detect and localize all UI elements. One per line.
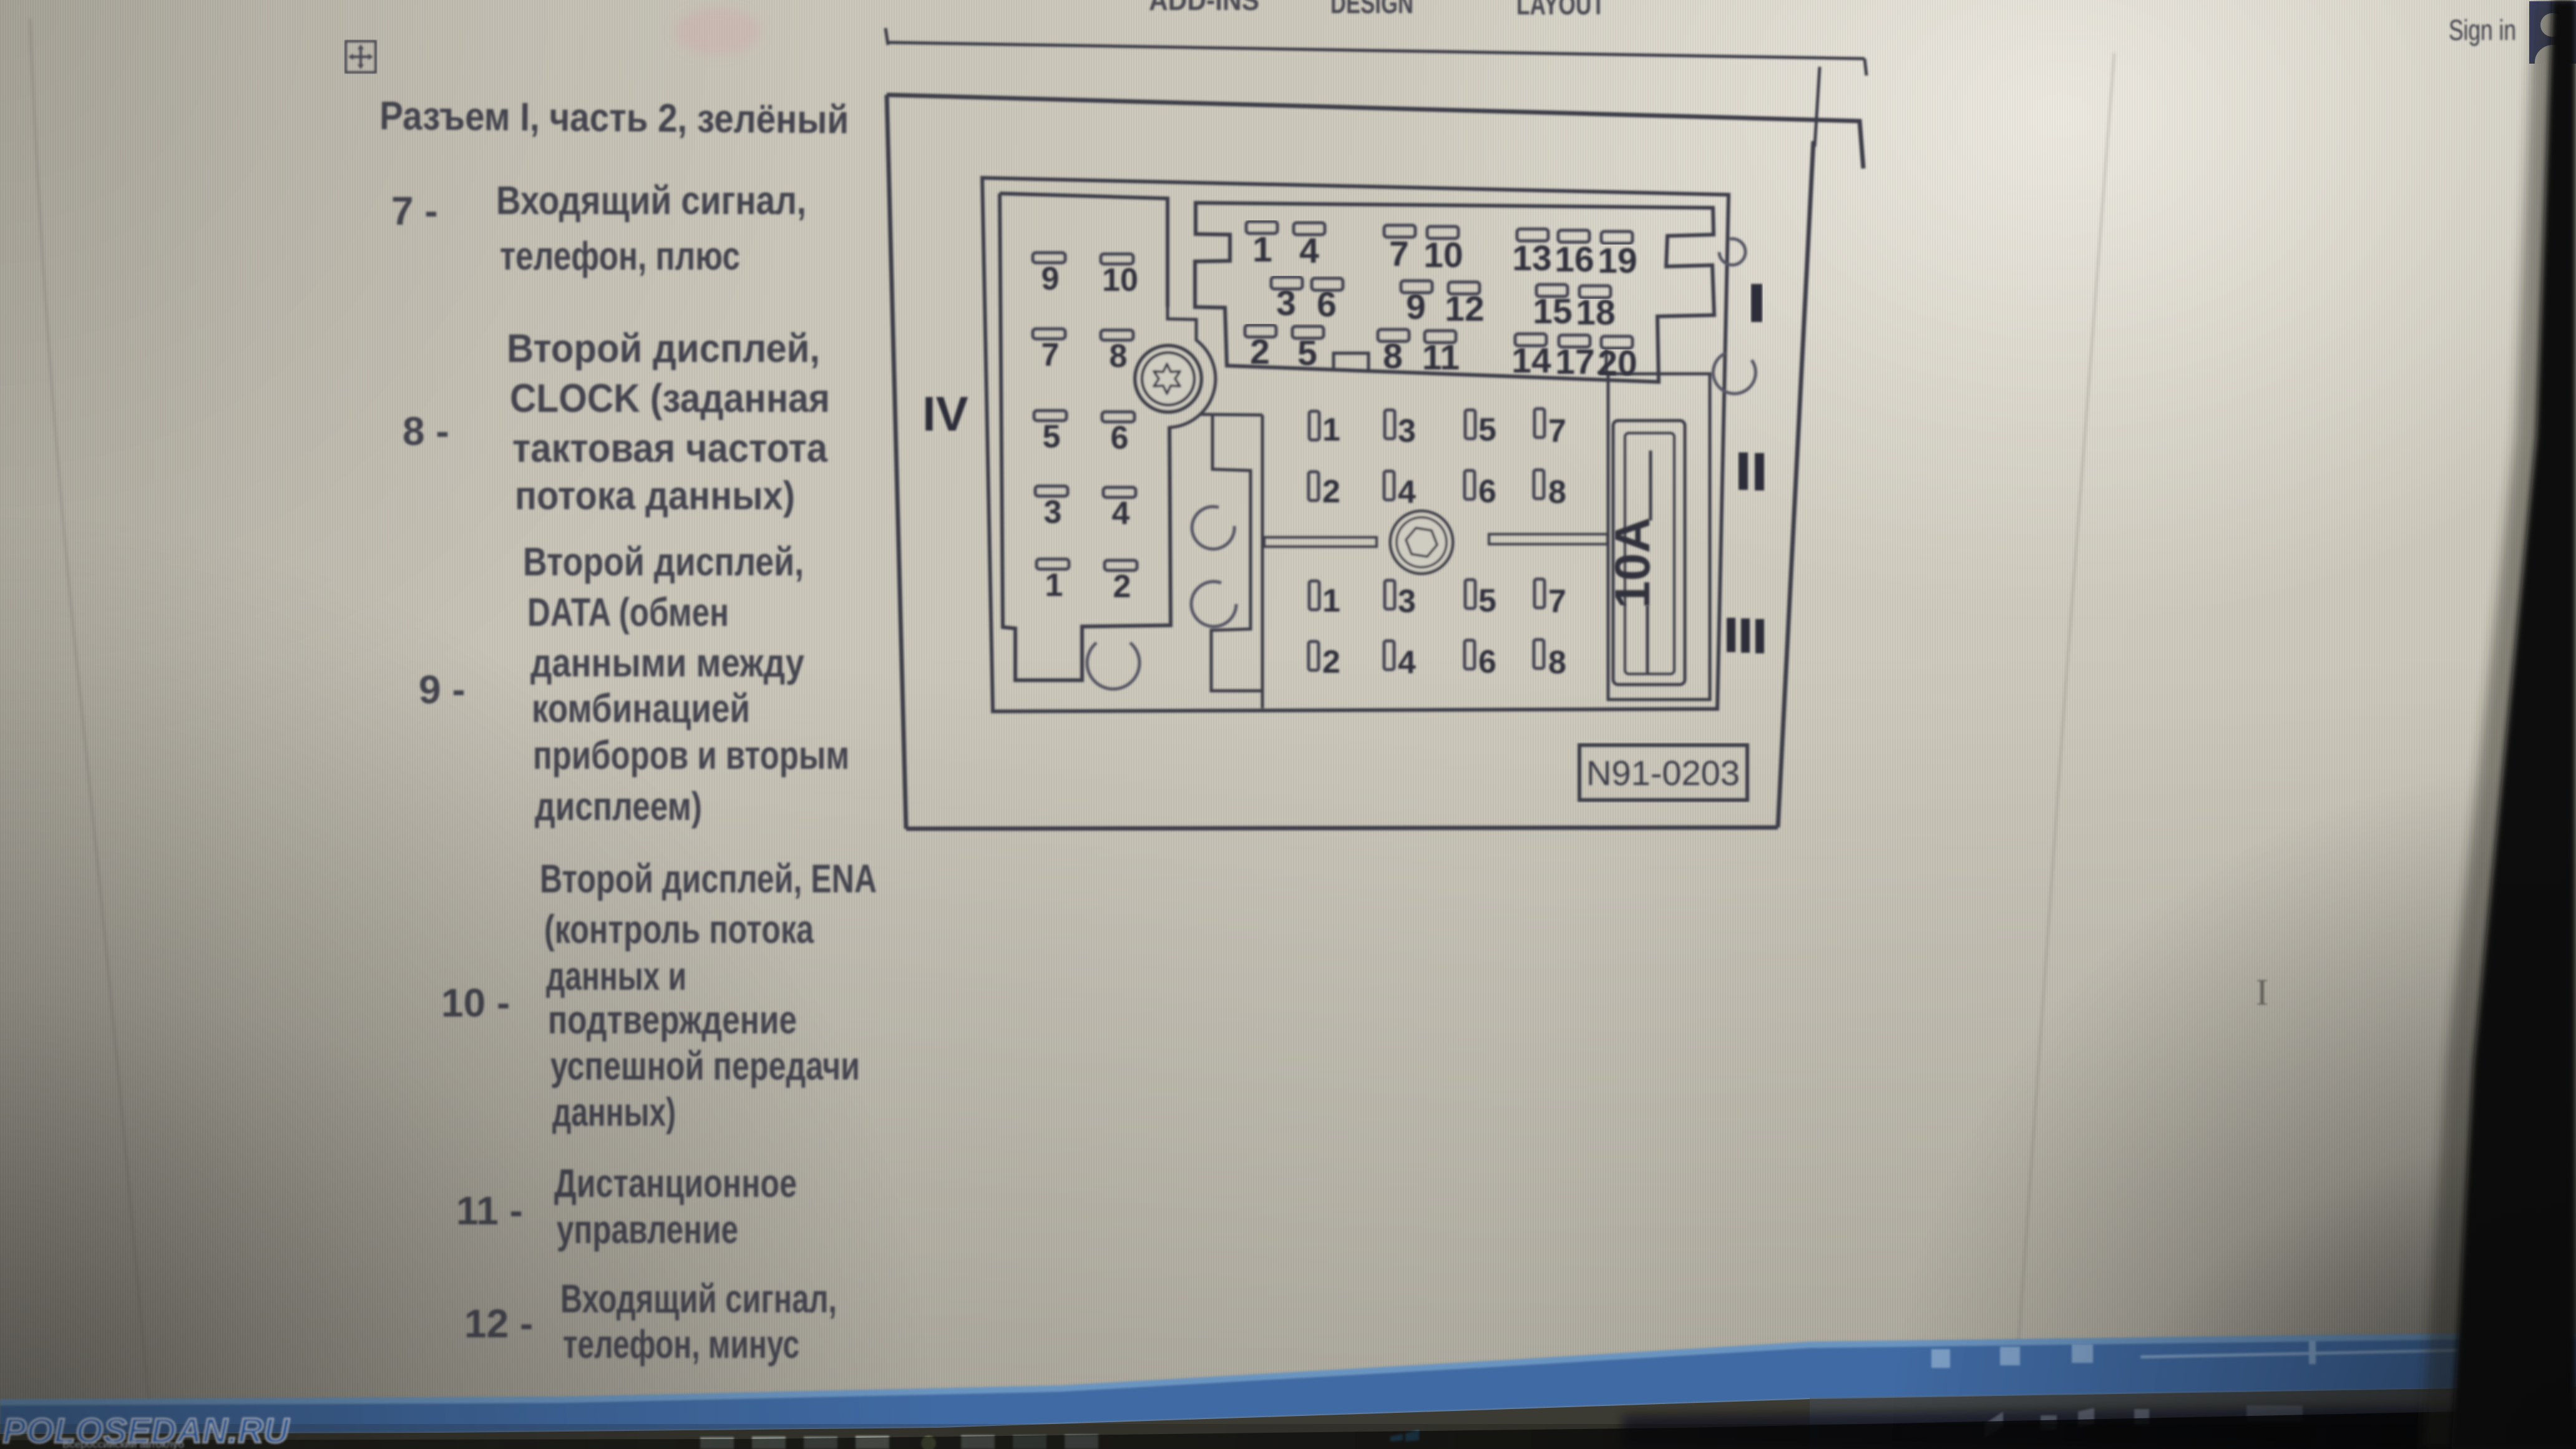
svg-text:7: 7 bbox=[1548, 413, 1566, 449]
svg-text:7 -: 7 - bbox=[391, 188, 438, 233]
svg-text:8: 8 bbox=[1548, 645, 1566, 681]
svg-text:успешной передачи: успешной передачи bbox=[550, 1043, 860, 1088]
svg-text:Дистанционное: Дистанционное bbox=[554, 1161, 797, 1206]
svg-text:I: I bbox=[2256, 972, 2268, 1013]
svg-text:7: 7 bbox=[1548, 583, 1566, 620]
svg-text:подтверждение: подтверждение bbox=[548, 997, 797, 1042]
svg-text:9: 9 bbox=[1406, 287, 1426, 327]
svg-text:1: 1 bbox=[1045, 567, 1063, 603]
svg-text:5: 5 bbox=[1478, 412, 1496, 448]
svg-text:1: 1 bbox=[1322, 583, 1340, 619]
svg-text:17: 17 bbox=[1555, 342, 1594, 382]
svg-text:данных): данных) bbox=[552, 1090, 676, 1134]
svg-text:данных и: данных и bbox=[546, 954, 686, 998]
svg-text:потока данных): потока данных) bbox=[515, 473, 795, 518]
svg-text:19: 19 bbox=[1598, 241, 1637, 281]
svg-text:Разъем I, часть 2, зелёный: Разъем I, часть 2, зелёный bbox=[379, 93, 849, 142]
svg-text:6: 6 bbox=[1111, 420, 1129, 456]
svg-text:N91-0203: N91-0203 bbox=[1586, 753, 1740, 793]
svg-text:LAYOUT: LAYOUT bbox=[1516, 0, 1605, 21]
svg-text:тактовая частота: тактовая частота bbox=[512, 426, 827, 471]
svg-text:12 -: 12 - bbox=[464, 1301, 533, 1346]
svg-text:4: 4 bbox=[1398, 645, 1416, 681]
svg-text:4: 4 bbox=[1299, 231, 1319, 271]
svg-text:20: 20 bbox=[1598, 343, 1637, 383]
svg-text:DATA (обмен: DATA (обмен bbox=[527, 590, 729, 635]
svg-text:приборов и вторым: приборов и вторым bbox=[533, 733, 849, 778]
svg-text:10: 10 bbox=[1102, 262, 1138, 298]
svg-text:7: 7 bbox=[1042, 337, 1060, 373]
svg-text:2: 2 bbox=[1113, 568, 1131, 605]
svg-text:6: 6 bbox=[1478, 474, 1496, 510]
svg-text:дисплеем): дисплеем) bbox=[535, 784, 702, 829]
svg-text:5: 5 bbox=[1297, 333, 1317, 373]
svg-text:3: 3 bbox=[1276, 283, 1296, 323]
svg-text:10 -: 10 - bbox=[441, 980, 510, 1025]
svg-text:3: 3 bbox=[1044, 494, 1062, 530]
svg-text:4: 4 bbox=[1112, 495, 1130, 532]
svg-text:Входящий сигнал,: Входящий сигнал, bbox=[496, 178, 806, 223]
svg-text:6: 6 bbox=[1478, 644, 1496, 680]
svg-text:6: 6 bbox=[1317, 285, 1337, 324]
svg-text:15: 15 bbox=[1533, 291, 1572, 331]
svg-text:10: 10 bbox=[1423, 235, 1463, 275]
svg-text:9: 9 bbox=[1042, 261, 1060, 297]
svg-text:Второй дисплей,: Второй дисплей, bbox=[507, 326, 820, 371]
svg-text:7: 7 bbox=[1389, 234, 1409, 274]
svg-text:3: 3 bbox=[1398, 413, 1416, 449]
svg-text:5: 5 bbox=[1478, 583, 1496, 619]
svg-text:16: 16 bbox=[1554, 240, 1594, 280]
svg-text:10A: 10A bbox=[1604, 517, 1660, 609]
svg-text:Второй дисплей,: Второй дисплей, bbox=[523, 539, 804, 584]
svg-text:Всероссийский автоклуб: Всероссийский автоклуб bbox=[62, 1438, 184, 1449]
svg-text:Sign in: Sign in bbox=[2449, 14, 2516, 46]
svg-text:2: 2 bbox=[1322, 644, 1340, 680]
svg-text:(контроль потока: (контроль потока bbox=[544, 907, 814, 952]
svg-text:комбинацией: комбинацией bbox=[532, 686, 750, 731]
svg-text:9 -: 9 - bbox=[419, 667, 466, 712]
svg-text:1: 1 bbox=[1322, 412, 1340, 448]
svg-text:11 -: 11 - bbox=[456, 1188, 523, 1233]
svg-text:1: 1 bbox=[1252, 230, 1272, 270]
svg-text:3: 3 bbox=[1398, 583, 1416, 620]
svg-text:11: 11 bbox=[1422, 338, 1460, 378]
svg-text:DESIGN: DESIGN bbox=[1330, 0, 1413, 19]
svg-text:телефон, плюс: телефон, плюс bbox=[500, 233, 740, 278]
svg-text:CLOCK (заданная: CLOCK (заданная bbox=[510, 376, 830, 421]
svg-text:ADD-INS: ADD-INS bbox=[1149, 0, 1259, 16]
svg-text:4: 4 bbox=[1398, 474, 1416, 510]
svg-text:8 -: 8 - bbox=[402, 409, 449, 454]
svg-text:8: 8 bbox=[1110, 338, 1128, 374]
svg-text:Входящий сигнал,: Входящий сигнал, bbox=[560, 1276, 837, 1321]
svg-text:IV: IV bbox=[922, 386, 968, 441]
svg-text:5: 5 bbox=[1043, 419, 1061, 455]
svg-text:2: 2 bbox=[1250, 332, 1270, 372]
svg-text:12: 12 bbox=[1445, 289, 1484, 329]
svg-text:управление: управление bbox=[557, 1207, 738, 1252]
svg-text:телефон, минус: телефон, минус bbox=[563, 1322, 799, 1367]
svg-text:13: 13 bbox=[1512, 238, 1551, 278]
svg-text:данными между: данными между bbox=[530, 640, 804, 685]
svg-text:Второй дисплей, ENA: Второй дисплей, ENA bbox=[540, 856, 877, 901]
svg-text:14: 14 bbox=[1511, 341, 1551, 381]
svg-text:8: 8 bbox=[1383, 336, 1403, 376]
svg-text:18: 18 bbox=[1576, 293, 1615, 333]
svg-text:8: 8 bbox=[1548, 474, 1566, 510]
svg-text:2: 2 bbox=[1322, 474, 1340, 510]
